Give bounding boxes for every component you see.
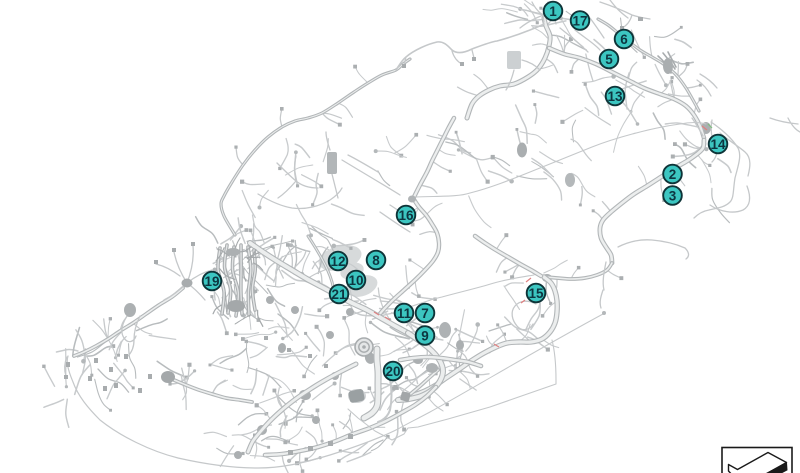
svg-text:11: 11 (397, 306, 412, 321)
svg-text:9: 9 (421, 328, 429, 343)
svg-text:17: 17 (572, 13, 587, 28)
svg-text:5: 5 (605, 52, 613, 67)
svg-text:2: 2 (669, 167, 677, 182)
svg-text:6: 6 (620, 32, 628, 47)
svg-text:13: 13 (607, 89, 623, 104)
svg-text:1: 1 (549, 4, 557, 19)
svg-text:3: 3 (669, 188, 677, 203)
svg-text:21: 21 (331, 287, 347, 302)
svg-text:8: 8 (372, 253, 380, 268)
svg-text:15: 15 (528, 286, 544, 301)
svg-text:19: 19 (204, 274, 219, 289)
svg-text:20: 20 (385, 364, 400, 379)
svg-text:10: 10 (348, 273, 363, 288)
svg-text:14: 14 (710, 137, 726, 152)
svg-text:12: 12 (330, 254, 345, 269)
svg-text:16: 16 (398, 208, 414, 223)
svg-text:7: 7 (421, 306, 429, 321)
